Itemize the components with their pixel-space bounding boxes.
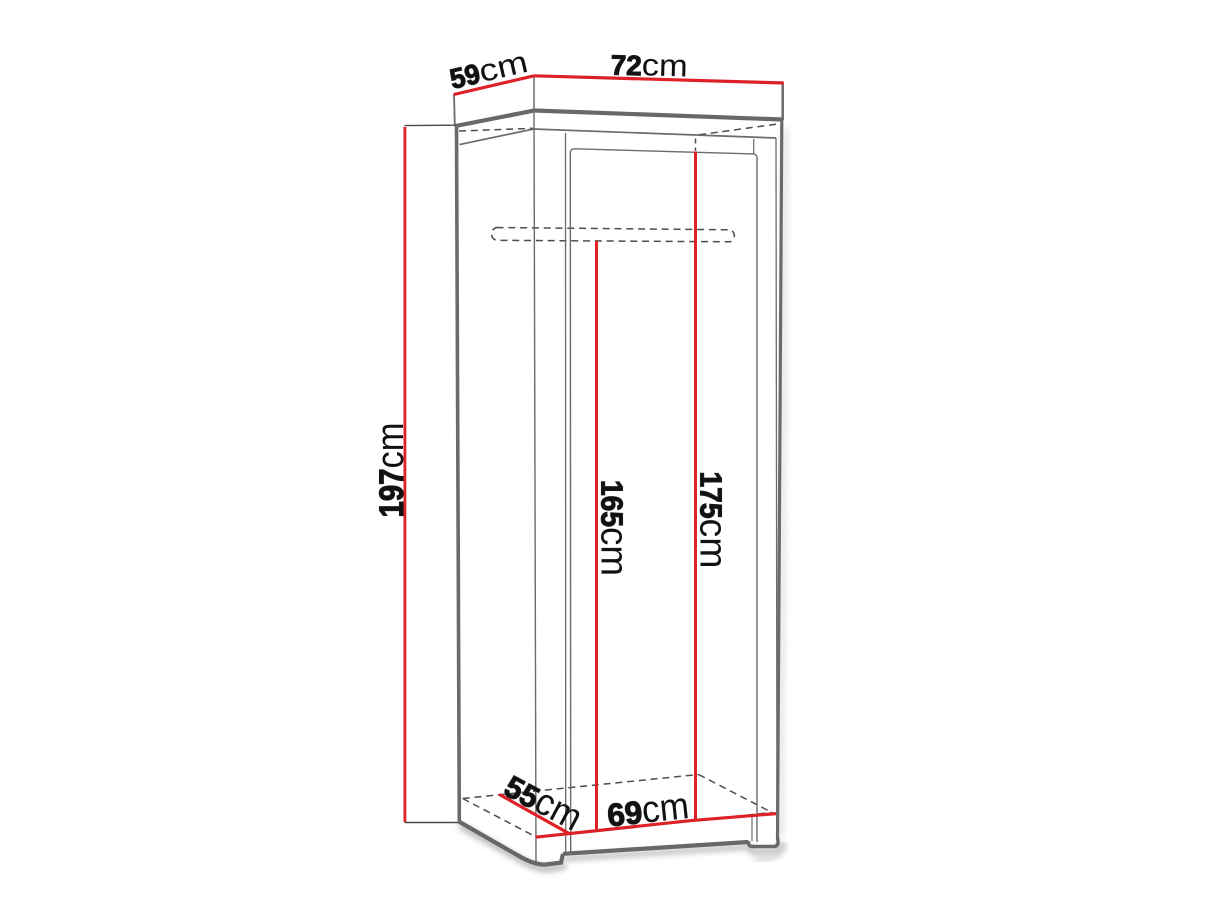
- svg-text:165cm: 165cm: [593, 480, 635, 576]
- svg-text:175cm: 175cm: [692, 472, 734, 569]
- svg-text:197cm: 197cm: [370, 423, 412, 518]
- svg-text:69cm: 69cm: [605, 785, 691, 835]
- svg-text:55cm: 55cm: [498, 764, 589, 839]
- svg-text:72cm: 72cm: [610, 47, 688, 84]
- svg-text:59cm: 59cm: [446, 44, 531, 96]
